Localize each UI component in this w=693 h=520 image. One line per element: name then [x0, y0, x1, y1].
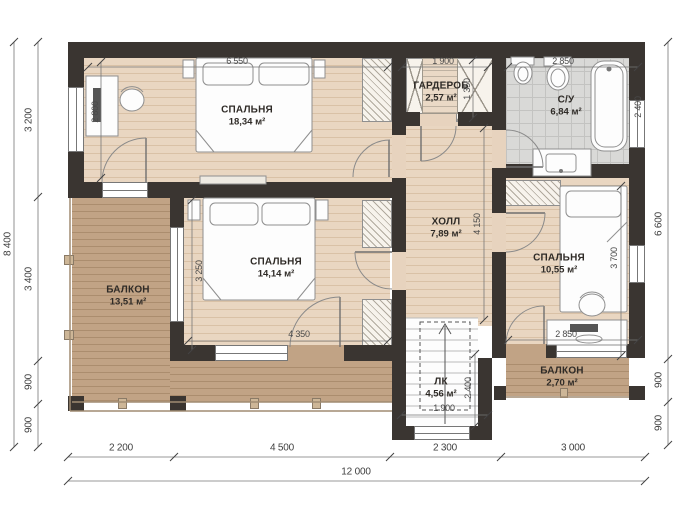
dim-bottom-total: 12 000 [341, 467, 370, 478]
dim-bed-main-width: 6 550 [226, 56, 248, 66]
room-name: С/У [558, 95, 575, 107]
room-name: БАЛКОН [106, 285, 149, 297]
room-label-bedroom-middle: СПАЛЬНЯ 14,14 м² [250, 257, 302, 280]
room-area: 13,51 м² [110, 296, 147, 307]
room-label-balcony-left: БАЛКОН 13,51 м² [106, 285, 149, 308]
dim-stairs-height: 2 400 [463, 377, 473, 399]
dim-bed-main-left: 2 800 [90, 101, 100, 123]
room-area: 6,84 м² [550, 106, 581, 117]
dim-bed-right-bed: 3 700 [609, 247, 619, 269]
dim-wardrobe-depth: 1 350 [462, 78, 472, 100]
dim-right-seg: 6 600 [654, 212, 665, 236]
room-label-bedroom-right: СПАЛЬНЯ 10,55 м² [533, 253, 585, 276]
room-label-hall: ХОЛЛ 7,89 м² [430, 217, 461, 240]
dim-right-seg: 900 [654, 415, 665, 431]
dim-hall-height: 4 150 [472, 213, 482, 235]
dim-left-seg: 900 [24, 417, 35, 433]
room-label-wardrobe: ГАРДЕРОБ 2,57 м² [413, 81, 468, 104]
room-area: 18,34 м² [229, 116, 266, 127]
room-label-bedroom-main: СПАЛЬНЯ 18,34 м² [221, 105, 273, 128]
dim-bottom-seg: 2 200 [109, 443, 133, 454]
room-name: ЛК [434, 377, 448, 389]
room-name: ГАРДЕРОБ [413, 81, 468, 93]
room-area: 2,70 м² [546, 377, 577, 388]
dim-left-seg: 3 200 [24, 108, 35, 132]
room-name: СПАЛЬНЯ [533, 253, 585, 265]
dim-bottom-seg: 3 000 [561, 443, 585, 454]
plan-graphics-layer [0, 0, 693, 520]
room-area: 4,56 м² [425, 388, 456, 399]
dim-wardrobe-width: 1 900 [432, 56, 454, 66]
floor-plan: СПАЛЬНЯ 18,34 м² ГАРДЕРОБ 2,57 м² С/У 6,… [0, 0, 693, 520]
dim-stairs-width: 1 900 [433, 403, 455, 413]
dim-bathroom-width: 2 850 [552, 56, 574, 66]
room-name: ХОЛЛ [432, 217, 461, 229]
room-name: БАЛКОН [540, 366, 583, 378]
dim-left-seg: 900 [24, 374, 35, 390]
room-area: 7,89 м² [430, 228, 461, 239]
room-label-stairs: ЛК 4,56 м² [425, 377, 456, 400]
dim-bottom-seg: 4 500 [270, 443, 294, 454]
room-label-bathroom: С/У 6,84 м² [550, 95, 581, 118]
dim-right-seg: 900 [654, 372, 665, 388]
dim-left-total: 8 400 [3, 232, 14, 256]
room-area: 14,14 м² [258, 268, 295, 279]
room-name: СПАЛЬНЯ [221, 105, 273, 117]
room-area: 10,55 м² [541, 264, 578, 275]
dim-bathtub: 2 400 [633, 96, 643, 118]
dim-balcony-window: 3 250 [194, 260, 204, 282]
dim-bottom-seg: 2 300 [433, 443, 457, 454]
room-area: 2,57 м² [425, 92, 456, 103]
dim-bed-right-width: 2 850 [555, 329, 577, 339]
dim-left-seg: 3 400 [24, 267, 35, 291]
room-label-balcony-right: БАЛКОН 2,70 м² [540, 366, 583, 389]
plan-graphics [0, 0, 693, 520]
room-name: СПАЛЬНЯ [250, 257, 302, 269]
dim-bed-mid-width: 4 350 [288, 329, 310, 339]
